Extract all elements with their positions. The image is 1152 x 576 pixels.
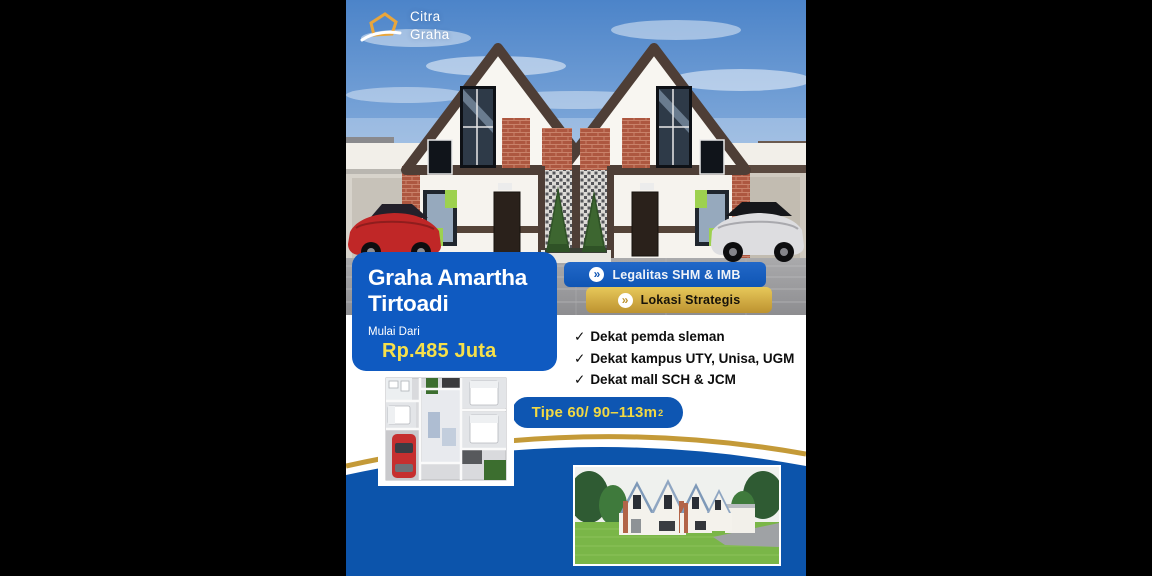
brand-name-line2: Graha (410, 27, 450, 42)
brand-name-line1: Citra (410, 9, 441, 24)
check-icon: ✓ (574, 372, 585, 387)
feature-item: ✓Dekat kampus UTY, Unisa, UGM (574, 348, 789, 370)
type-pill-text: Tipe 60/ 90–113m (532, 404, 658, 421)
badge-lokasi: » Lokasi Strategis (586, 287, 772, 313)
badge-legalitas: » Legalitas SHM & IMB (564, 262, 766, 287)
feature-text: Dekat mall SCH & JCM (590, 372, 736, 387)
feature-text: Dekat pemda sleman (590, 329, 724, 344)
feature-item: ✓Dekat mall SCH & JCM (574, 369, 789, 391)
price-value: Rp.485 Juta (382, 340, 542, 363)
site-render-image (575, 467, 779, 564)
flyer: Citra Graha Graha Amartha Tirtoadi Mulai… (346, 0, 806, 576)
feature-list: ✓Dekat pemda sleman ✓Dekat kampus UTY, U… (574, 326, 789, 391)
type-pill: Tipe 60/ 90–113m2 (512, 397, 683, 428)
check-icon: ✓ (574, 351, 585, 366)
price-label: Mulai Dari (368, 326, 542, 338)
check-icon: ✓ (574, 329, 585, 344)
brand-name: Citra Graha (410, 8, 450, 43)
poster-canvas: Citra Graha Graha Amartha Tirtoadi Mulai… (0, 0, 1152, 576)
project-title-line2: Tirtoadi (368, 291, 542, 317)
floor-plan-image (378, 372, 514, 486)
title-card: Graha Amartha Tirtoadi Mulai Dari Rp.485… (352, 252, 557, 371)
badge-lokasi-label: Lokasi Strategis (641, 293, 741, 307)
feature-text: Dekat kampus UTY, Unisa, UGM (590, 351, 794, 366)
brand-logo: Citra Graha (360, 8, 450, 43)
chevron-right-circle-icon: » (589, 267, 604, 282)
house-outline-swoosh-icon (360, 9, 402, 43)
project-title-line1: Graha Amartha (368, 265, 542, 291)
feature-item: ✓Dekat pemda sleman (574, 326, 789, 348)
chevron-right-circle-icon: » (618, 293, 633, 308)
badge-legalitas-label: Legalitas SHM & IMB (612, 268, 740, 282)
